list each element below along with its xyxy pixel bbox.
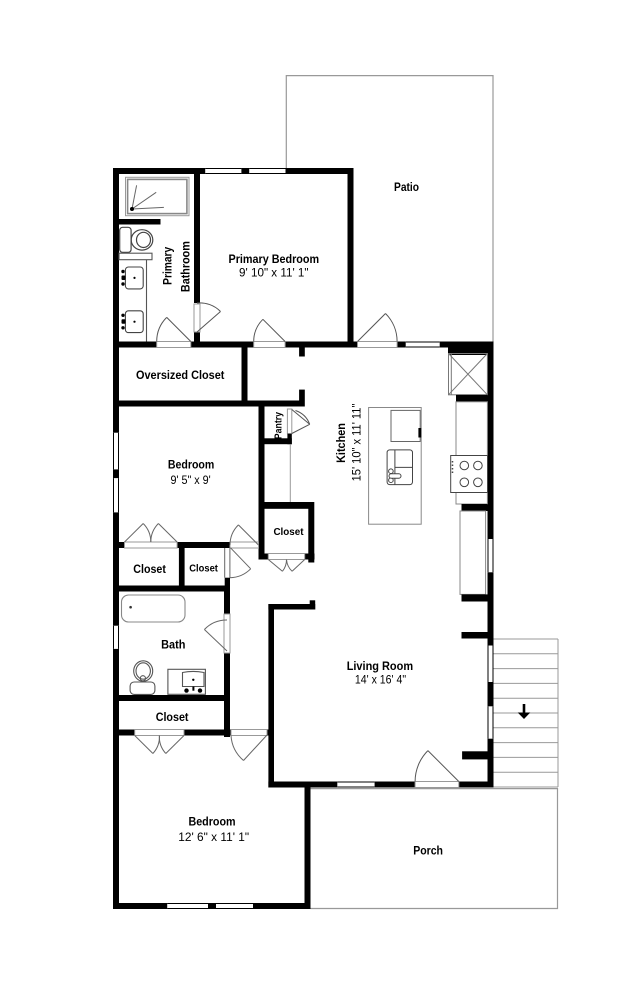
svg-text:Patio: Patio [394, 180, 419, 194]
svg-text:Closet: Closet [189, 564, 218, 575]
svg-text:Primary: Primary [161, 247, 175, 285]
svg-text:Bedroom: Bedroom [168, 458, 215, 472]
svg-text:12' 6" x 11' 1": 12' 6" x 11' 1" [178, 830, 249, 844]
svg-text:Pantry: Pantry [274, 412, 285, 440]
svg-text:Kitchen: Kitchen [334, 423, 348, 463]
svg-text:Closet: Closet [133, 562, 166, 576]
svg-text:15' 10" x 11' 11": 15' 10" x 11' 11" [350, 404, 364, 482]
svg-text:Living Room: Living Room [347, 659, 414, 673]
svg-text:9' 5" x 9': 9' 5" x 9' [170, 473, 210, 487]
svg-text:9' 10" x 11' 1": 9' 10" x 11' 1" [239, 265, 309, 279]
svg-text:Oversized Closet: Oversized Closet [136, 368, 224, 382]
svg-text:Bedroom: Bedroom [188, 815, 235, 829]
svg-text:Primary Bedroom: Primary Bedroom [229, 252, 320, 266]
svg-text:Closet: Closet [273, 527, 304, 538]
svg-text:Closet: Closet [156, 710, 189, 724]
svg-text:14' x 16' 4": 14' x 16' 4" [355, 673, 406, 687]
svg-text:Porch: Porch [413, 844, 443, 858]
svg-text:Bathroom: Bathroom [178, 241, 192, 292]
svg-text:Bath: Bath [161, 637, 185, 651]
